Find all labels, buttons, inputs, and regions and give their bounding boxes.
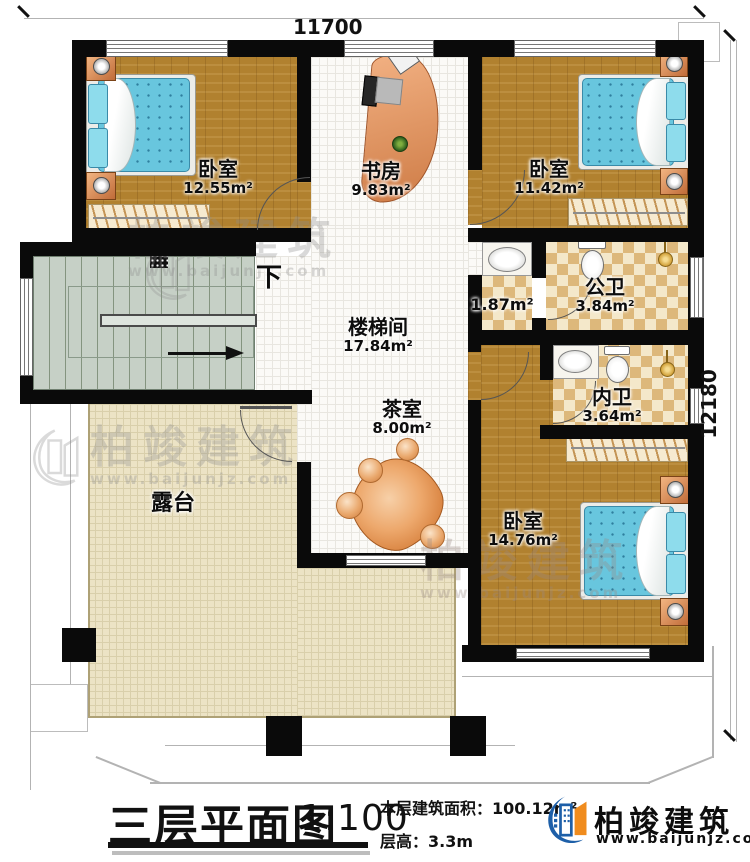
room-name: 书房 <box>321 160 441 182</box>
toilet-bowl-icon <box>606 356 629 383</box>
room-label-study: 书房 9.83m² <box>321 160 441 199</box>
wall <box>72 228 311 242</box>
window <box>690 257 704 318</box>
dimension-line-right <box>730 40 731 740</box>
lamp-icon <box>667 603 684 620</box>
shower-head-icon <box>658 252 673 267</box>
bed-pillow <box>666 512 686 552</box>
room-area: 17.84m² <box>318 338 438 355</box>
room-name: 楼梯间 <box>318 316 438 338</box>
title-underline <box>108 842 368 848</box>
room-area: 14.76m² <box>463 532 583 549</box>
window <box>20 278 33 376</box>
bed-pillow <box>666 82 686 120</box>
wardrobe-rod <box>571 447 685 449</box>
wall <box>532 242 546 278</box>
bedroom3-door-threshold <box>468 352 481 400</box>
stair-direction-arrow-head <box>226 346 244 360</box>
room-area: 9.83m² <box>321 182 441 199</box>
room-name: 卧室 <box>489 158 609 180</box>
room-name: 露台 <box>123 492 223 517</box>
lamp-icon <box>93 58 110 75</box>
dimension-right: 12180 <box>697 359 721 449</box>
wardrobe <box>88 204 210 230</box>
door-leaf <box>240 406 292 409</box>
room-label-bedroom3: 卧室 14.76m² <box>463 510 583 549</box>
platform-edge-diagonal <box>96 756 161 784</box>
room-label-washroom: 1.87m² <box>452 296 552 314</box>
bed-blanket <box>636 78 670 166</box>
column <box>450 716 486 756</box>
floor-height-value: 3.3m <box>428 832 473 851</box>
wall <box>20 242 256 256</box>
stair-direction-arrow-tail <box>168 352 228 355</box>
dimension-tick <box>17 5 30 18</box>
wardrobe-rod <box>93 217 207 219</box>
wall <box>468 330 481 352</box>
wall <box>688 40 704 662</box>
stair-direction-label: 下 <box>252 264 286 293</box>
stair-handrail <box>100 314 257 327</box>
bed-pillow <box>666 554 686 594</box>
wall <box>540 345 553 380</box>
terrace-edge <box>88 404 90 718</box>
wardrobe <box>568 198 688 226</box>
eave-box-bottom-left <box>30 684 88 732</box>
sink-icon <box>488 247 526 272</box>
terrace-floor-extension <box>297 568 455 718</box>
floor-plan-canvas: 柏竣建筑 www.baijunjz.com 柏竣建筑 www.baijunjz.… <box>0 0 750 862</box>
wall <box>72 40 86 232</box>
wall <box>468 228 704 242</box>
terrace-edge <box>454 568 456 718</box>
wall <box>20 390 312 404</box>
wall <box>468 330 704 345</box>
room-name: 内卫 <box>552 386 672 408</box>
bed-blanket <box>636 506 670 596</box>
room-label-public-bath: 公卫 3.84m² <box>545 276 665 315</box>
room-label-terrace: 露台 <box>123 492 223 517</box>
lamp-icon <box>93 177 110 194</box>
room-label-ensuite-bath: 内卫 3.64m² <box>552 386 672 425</box>
bed-pillow <box>88 84 108 124</box>
wall <box>468 40 482 170</box>
lamp-icon <box>666 173 683 190</box>
desk-chair <box>375 77 404 106</box>
floor-height-label: 层高： <box>380 832 428 851</box>
bed-pillow <box>666 124 686 162</box>
column <box>266 716 302 756</box>
room-label-bedroom2: 卧室 11.42m² <box>489 158 609 197</box>
shower-head-icon <box>660 362 675 377</box>
room-area: 3.64m² <box>552 408 672 425</box>
window <box>516 648 650 659</box>
washroom-threshold <box>468 242 482 275</box>
room-area: 1.87m² <box>452 296 552 314</box>
company-website: www.baijunjz.com <box>596 831 750 847</box>
plant-icon <box>392 136 408 152</box>
lamp-icon <box>667 481 684 498</box>
floor-cushion <box>396 438 419 461</box>
room-label-bedroom1: 卧室 12.55m² <box>158 158 278 197</box>
title-underline-shadow <box>112 851 370 855</box>
room-name: 卧室 <box>158 158 278 180</box>
floor-cushion <box>336 492 363 519</box>
company-logo-icon <box>544 794 590 846</box>
room-name: 公卫 <box>545 276 665 298</box>
wardrobe-rod <box>573 212 685 214</box>
dimension-tick <box>693 5 706 18</box>
room-name: 卧室 <box>463 510 583 532</box>
floor-cushion <box>358 458 383 483</box>
column <box>62 628 96 662</box>
wall <box>540 425 690 439</box>
floor-cushion <box>420 524 445 549</box>
floor-height-text: 层高：3.3m <box>380 828 473 852</box>
room-area: 3.84m² <box>545 298 665 315</box>
bed-pillow <box>88 128 108 168</box>
toilet-tank-icon <box>604 346 630 355</box>
sink-icon <box>558 350 592 373</box>
wall <box>297 40 311 182</box>
window <box>106 40 228 57</box>
eave-line <box>736 40 737 742</box>
dimension-line-top <box>24 18 704 19</box>
terrace-door-threshold <box>297 404 311 462</box>
room-area: 8.00m² <box>342 420 462 437</box>
eave-line <box>712 646 714 758</box>
room-area: 12.55m² <box>158 180 278 197</box>
watermark-logo-icon <box>24 428 88 488</box>
floor-area-label: 本层建筑面积： <box>380 799 492 818</box>
room-area: 11.42m² <box>489 180 609 197</box>
platform-edge <box>150 782 650 784</box>
window <box>346 555 426 566</box>
room-label-stairwell: 楼梯间 17.84m² <box>318 316 438 355</box>
eave-line <box>462 676 712 677</box>
window <box>344 40 434 57</box>
window <box>514 40 656 57</box>
lamp-icon <box>666 55 683 72</box>
dimension-top: 11700 <box>293 15 363 39</box>
platform-edge-diagonal <box>648 756 713 784</box>
room-label-tea-room: 茶室 8.00m² <box>342 398 462 437</box>
room-name: 茶室 <box>342 398 462 420</box>
